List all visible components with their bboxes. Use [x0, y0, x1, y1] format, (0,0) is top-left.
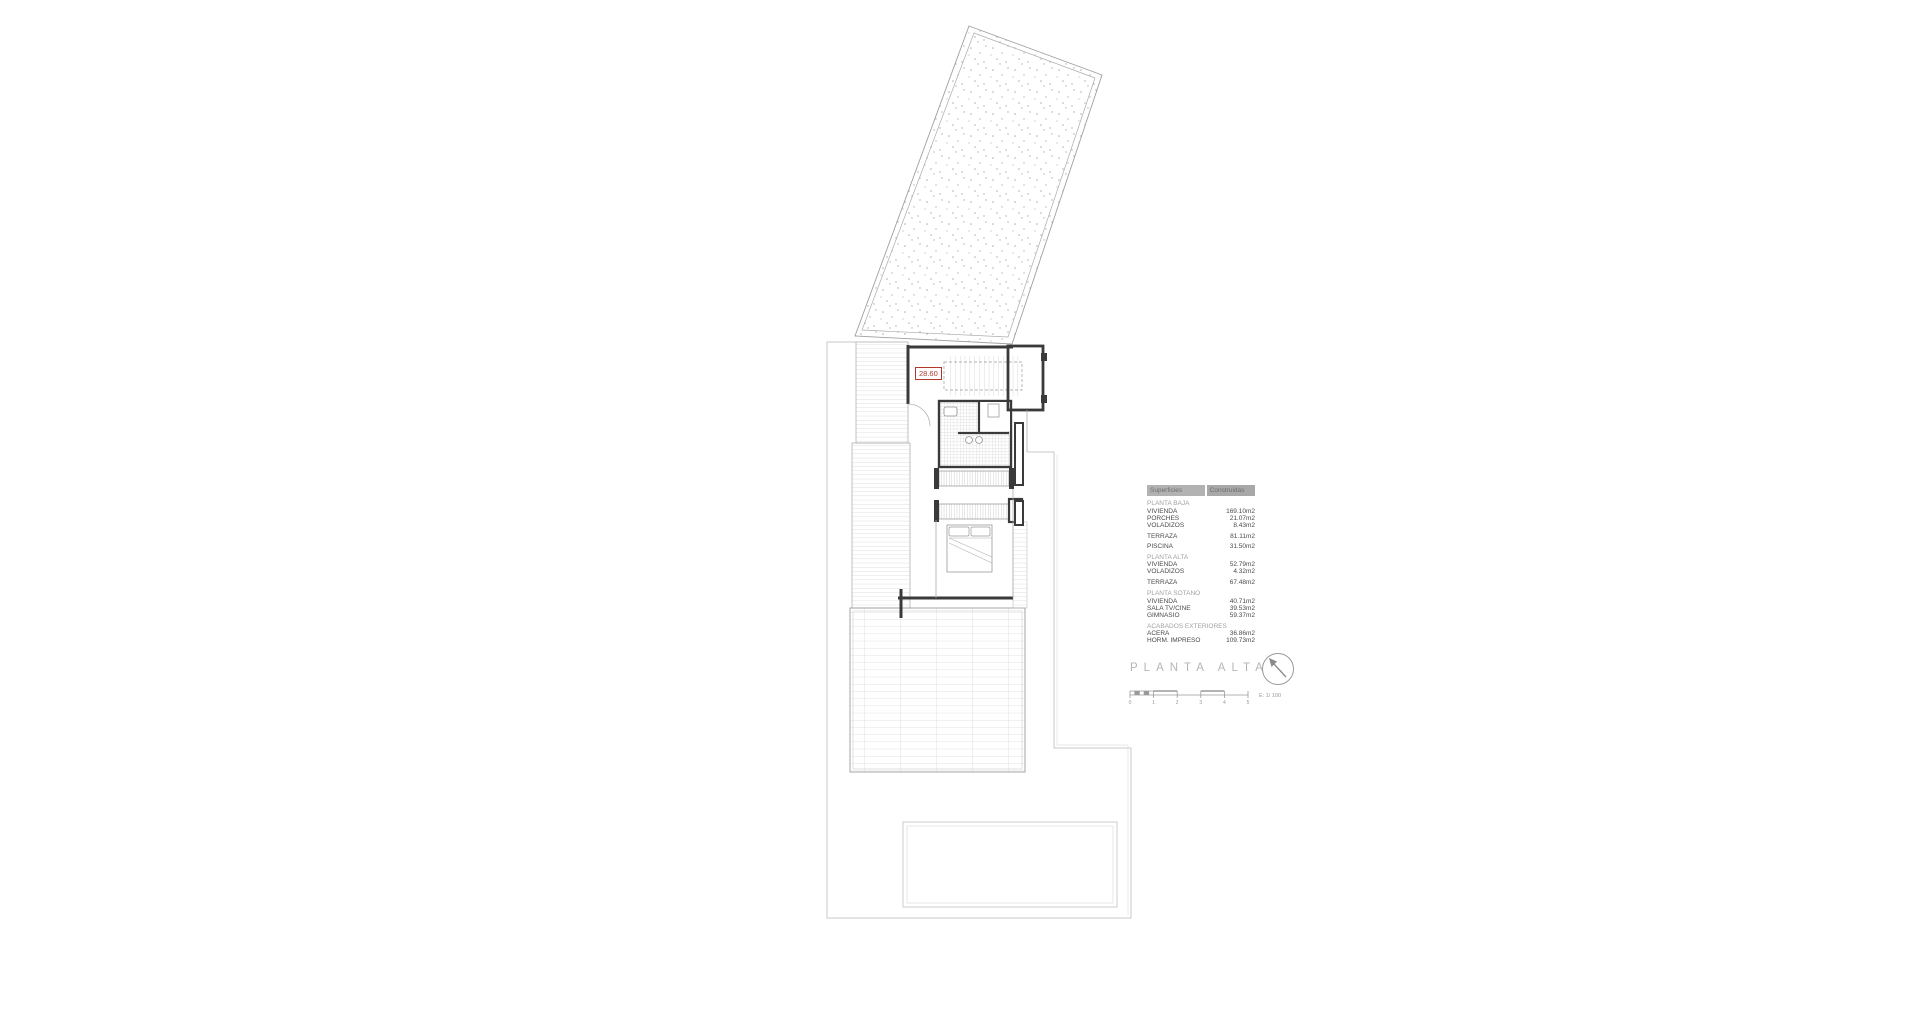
row-value: 21.07m2 [1230, 515, 1255, 522]
floor-plan-drawing [0, 0, 1920, 1024]
table-row: VOLADIZOS 8.43m2 [1147, 522, 1255, 529]
north-arrow-icon [1259, 650, 1299, 690]
row-value: 8.43m2 [1233, 522, 1255, 529]
row-label: VIVIENDA [1147, 561, 1177, 568]
row-value: 109.73m2 [1226, 637, 1255, 644]
row-value: 31.50m2 [1230, 543, 1255, 550]
site-parcel-gravel [855, 26, 1102, 344]
row-label: PISCINA [1147, 543, 1173, 550]
row-label: TERRAZA [1147, 533, 1177, 540]
built-col-title: Construidas [1207, 485, 1255, 496]
table-row: VIVIENDA 40.71m2 [1147, 598, 1255, 605]
surfaces-table: Superficies Construidas PLANTA BAJA VIVI… [1147, 485, 1255, 648]
sink-symbol [966, 437, 973, 444]
row-label: HORM. IMPRESO [1147, 637, 1200, 644]
bed-symbol [947, 525, 992, 572]
group-title: PLANTA ALTA [1147, 554, 1255, 561]
scale-tick-4: 4 [1223, 700, 1226, 706]
scale-tick-1: 1 [1152, 700, 1155, 706]
surfaces-group-planta-alta: PLANTA ALTA VIVIENDA 52.79m2 VOLADIZOS 4… [1147, 554, 1255, 576]
scale-tick-0: 0 [1129, 700, 1132, 706]
surfaces-table-header: Superficies Construidas [1147, 485, 1255, 496]
surfaces-group-terraza-piscina: TERRAZA 81.11m2 PISCINA 31.50m2 [1147, 533, 1255, 550]
sink-symbol [976, 437, 983, 444]
scale-ratio-label: E: 1/ 100 [1259, 693, 1281, 699]
glazing-strips [934, 468, 1022, 522]
surfaces-group-terraza-alta: TERRAZA 67.48m2 [1147, 579, 1255, 586]
table-row: VIVIENDA 169.10m2 [1147, 508, 1255, 515]
architectural-drawing-page: { "plan": { "level_label": "28.60", "col… [0, 0, 1920, 1024]
table-row: TERRAZA 67.48m2 [1147, 579, 1255, 586]
walkway-strip [852, 342, 910, 608]
table-row: HORM. IMPRESO 109.73m2 [1147, 637, 1255, 644]
table-row: ACERA 36.86m2 [1147, 630, 1255, 637]
scale-tick-3: 3 [1199, 700, 1202, 706]
row-value: 40.71m2 [1230, 598, 1255, 605]
row-label: VIVIENDA [1147, 508, 1177, 515]
table-row: VOLADIZOS 4.32m2 [1147, 568, 1255, 575]
table-row: SALA TV/CINE 39.53m2 [1147, 605, 1255, 612]
group-title: PLANTA BAJA [1147, 500, 1255, 507]
surfaces-group-planta-sotano: PLANTA SOTANO VIVIENDA 40.71m2 SALA TV/C… [1147, 590, 1255, 619]
staircase [944, 356, 1022, 396]
row-value: 67.48m2 [1230, 579, 1255, 586]
toilet-symbol [944, 407, 957, 416]
door-swing-arc [908, 404, 930, 426]
surfaces-col-title: Superficies [1147, 485, 1205, 496]
group-title: PLANTA SOTANO [1147, 590, 1255, 597]
table-row: GIMNASIO 59.37m2 [1147, 612, 1255, 619]
bathroom [939, 401, 1011, 467]
scale-tick-5: 5 [1247, 700, 1250, 706]
group-title: ACABADOS EXTERIORES [1147, 623, 1255, 630]
row-value: 59.37m2 [1230, 612, 1255, 619]
table-row: PISCINA 31.50m2 [1147, 543, 1255, 550]
row-value: 39.53m2 [1230, 605, 1255, 612]
scale-tick-2: 2 [1176, 700, 1179, 706]
scale-bar: 0 1 2 3 4 5 E: 1/ 100 [1128, 686, 1303, 710]
level-elevation-label: 28.60 [915, 367, 942, 380]
surfaces-group-planta-baja: PLANTA BAJA VIVIENDA 169.10m2 PORCHES 21… [1147, 500, 1255, 529]
row-label: VOLADIZOS [1147, 522, 1184, 529]
row-value: 36.86m2 [1230, 630, 1255, 637]
row-label: ACERA [1147, 630, 1169, 637]
plan-title: PLANTA ALTA [1130, 662, 1269, 674]
surfaces-group-acabados: ACABADOS EXTERIORES ACERA 36.86m2 HORM. … [1147, 623, 1255, 645]
row-label: VIVIENDA [1147, 598, 1177, 605]
row-label: GIMNASIO [1147, 612, 1180, 619]
table-row: PORCHES 21.07m2 [1147, 515, 1255, 522]
row-label: VOLADIZOS [1147, 568, 1184, 575]
row-label: TERRAZA [1147, 579, 1177, 586]
row-label: SALA TV/CINE [1147, 605, 1191, 612]
pool-outline [903, 822, 1117, 907]
row-value: 52.79m2 [1230, 561, 1255, 568]
row-value: 4.32m2 [1233, 568, 1255, 575]
row-label: PORCHES [1147, 515, 1179, 522]
table-row: TERRAZA 81.11m2 [1147, 533, 1255, 540]
row-value: 169.10m2 [1226, 508, 1255, 515]
table-row: VIVIENDA 52.79m2 [1147, 561, 1255, 568]
row-value: 81.11m2 [1230, 533, 1255, 540]
